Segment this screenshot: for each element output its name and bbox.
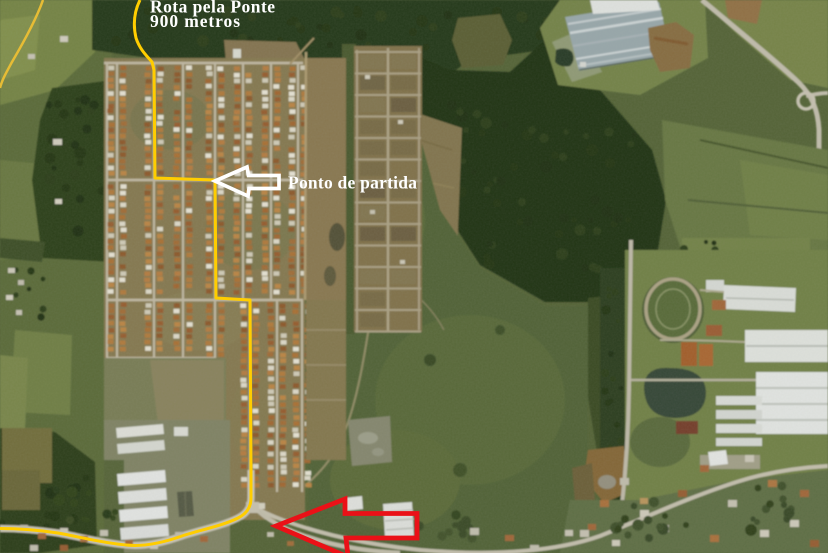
svg-text:900 metros: 900 metros [150, 11, 240, 31]
svg-text:Ponto de partida: Ponto de partida [288, 173, 417, 193]
